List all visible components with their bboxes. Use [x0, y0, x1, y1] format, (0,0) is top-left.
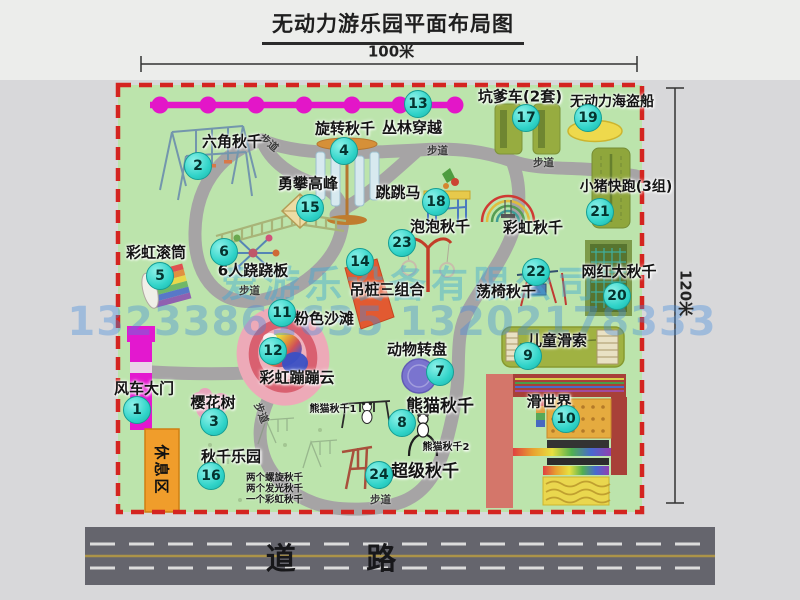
swing-park-note-1: 两个螺旋秋千 — [246, 473, 303, 483]
attraction-13-label: 丛林穿越 — [382, 121, 442, 136]
attraction-18-badge: 18 — [422, 188, 450, 216]
attraction-23-label: 泡泡秋千 — [410, 220, 470, 235]
attraction-2-label: 六角秋千 — [202, 135, 262, 150]
path-label: 步道 — [370, 495, 391, 506]
park-layout-map: 爱游乐设备有限公司 13233861635 13202178333 无动力游乐园… — [0, 0, 800, 600]
road-label: 道 路 — [266, 534, 426, 578]
path-label: 步道 — [239, 286, 260, 297]
attraction-19-badge: 19 — [574, 104, 602, 132]
panda-swing-1-label: 熊猫秋千1 — [310, 405, 357, 415]
rest-area-label: 休息区 — [152, 444, 173, 495]
attraction-8-label: 熊猫秋千 — [406, 399, 474, 416]
attraction-23-badge: 23 — [388, 229, 416, 257]
swing-park-note-2: 两个发光秋千 — [246, 484, 303, 494]
attraction-5-label: 彩虹滚筒 — [126, 246, 186, 261]
attraction-21-label: 小猪快跑(3组) — [580, 180, 673, 194]
attraction-18-label: 跳跳马 — [375, 186, 420, 201]
attraction-20-label: 网红大秋千 — [581, 265, 656, 280]
attraction-10-badge: 10 — [552, 405, 580, 433]
attraction-22-badge: 22 — [522, 258, 550, 286]
attraction-5-badge: 5 — [146, 262, 174, 290]
attraction-8-badge: 8 — [388, 409, 416, 437]
attraction-14-label: 吊桩三组合 — [349, 283, 424, 298]
attraction-7-label: 动物转盘 — [387, 343, 447, 358]
attraction-21-badge: 21 — [586, 198, 614, 226]
attraction-4-badge: 4 — [330, 137, 358, 165]
path-label: 步道 — [533, 158, 554, 169]
attraction-22-label: 荡椅秋千 — [476, 285, 536, 300]
attraction-9-badge: 9 — [514, 342, 542, 370]
attraction-4-label: 旋转秋千 — [315, 122, 375, 137]
panda-swing-2-label: 熊猫秋千2 — [423, 443, 470, 453]
swing-park-note-3: 一个彩虹秋千 — [246, 495, 303, 505]
attraction-6-badge: 6 — [210, 238, 238, 266]
attraction-1-badge: 1 — [123, 396, 151, 424]
attraction-20-badge: 20 — [603, 282, 631, 310]
path-label: 步道 — [427, 146, 448, 157]
attraction-3-badge: 3 — [200, 408, 228, 436]
attraction-6-label: 6人跷跷板 — [218, 264, 288, 279]
rainbow-swing-label: 彩虹秋千 — [503, 221, 563, 236]
page-title: 无动力游乐园平面布局图 — [262, 8, 524, 45]
attraction-2-badge: 2 — [184, 152, 212, 180]
attraction-24-badge: 24 — [365, 461, 393, 489]
attraction-7-badge: 7 — [426, 358, 454, 386]
attraction-17-label: 坑爹车(2套) — [478, 90, 562, 105]
attraction-15-badge: 15 — [296, 194, 324, 222]
attraction-12-badge: 12 — [259, 337, 287, 365]
attraction-12-label: 彩虹蹦蹦云 — [259, 371, 334, 386]
height-dimension-label: 120米 — [676, 270, 697, 316]
attraction-11-label: 粉色沙滩 — [294, 312, 354, 327]
attraction-14-badge: 14 — [346, 248, 374, 276]
attraction-1-label: 风车大门 — [114, 382, 174, 397]
attraction-24-label: 超级秋千 — [391, 464, 459, 481]
attraction-15-label: 勇攀高峰 — [278, 177, 338, 192]
attraction-16-badge: 16 — [197, 462, 225, 490]
attraction-17-badge: 17 — [512, 104, 540, 132]
attraction-11-badge: 11 — [268, 299, 296, 327]
attraction-13-badge: 13 — [404, 90, 432, 118]
